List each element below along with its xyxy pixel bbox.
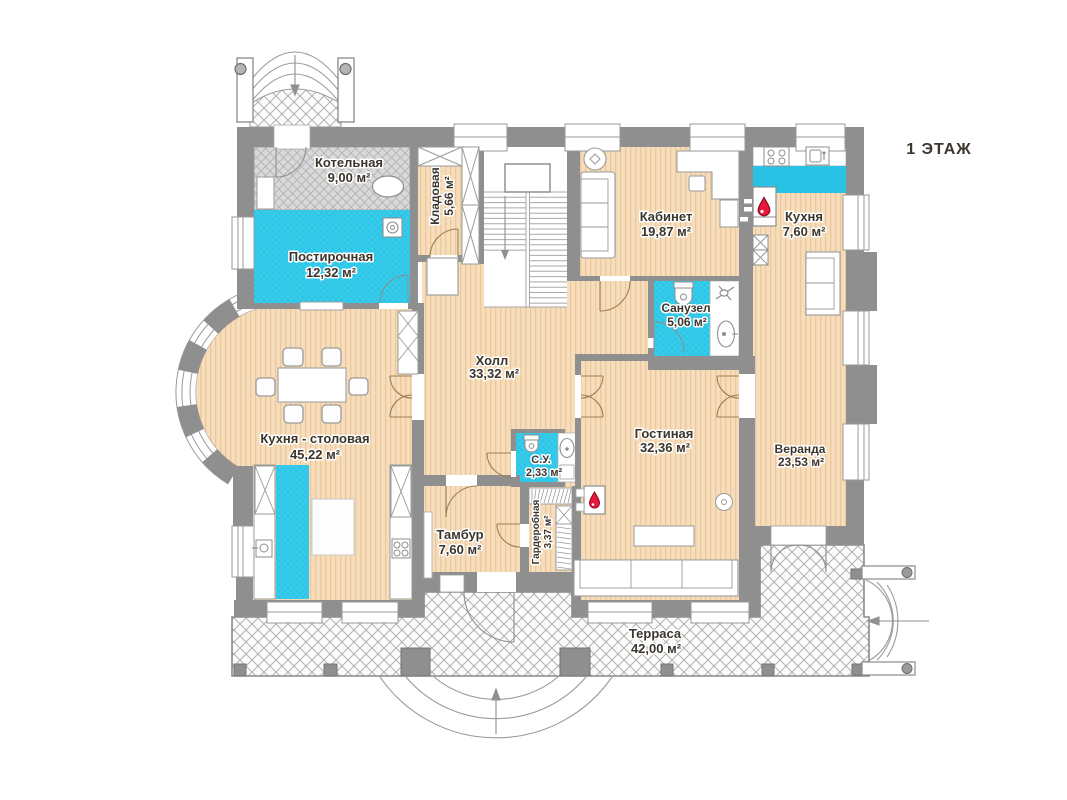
svg-text:Котельная: Котельная xyxy=(315,155,383,170)
svg-text:2,33 м²: 2,33 м² xyxy=(526,467,563,479)
svg-text:19,87 м²: 19,87 м² xyxy=(641,224,692,239)
svg-text:С.У.: С.У. xyxy=(531,454,551,466)
svg-text:1 ЭТАЖ: 1 ЭТАЖ xyxy=(906,141,972,158)
svg-text:Тамбур: Тамбур xyxy=(436,527,483,542)
svg-text:Кухня: Кухня xyxy=(785,209,823,224)
svg-text:3,37 м²: 3,37 м² xyxy=(543,515,554,549)
svg-text:Кладовая: Кладовая xyxy=(428,167,442,224)
svg-text:7,60 м²: 7,60 м² xyxy=(439,542,483,557)
svg-text:Веранда: Веранда xyxy=(775,442,826,456)
svg-text:12,32 м²: 12,32 м² xyxy=(306,265,357,280)
svg-text:23,53 м²: 23,53 м² xyxy=(778,455,824,469)
svg-text:42,00 м²: 42,00 м² xyxy=(631,641,682,656)
svg-text:Кухня - столовая: Кухня - столовая xyxy=(260,431,369,446)
svg-text:33,32 м²: 33,32 м² xyxy=(469,366,520,381)
svg-text:5,66 м²: 5,66 м² xyxy=(442,176,456,216)
svg-text:Кабинет: Кабинет xyxy=(640,209,693,224)
svg-text:Постирочная: Постирочная xyxy=(289,249,373,264)
svg-text:7,60 м²: 7,60 м² xyxy=(783,224,827,239)
svg-text:Гардеробная: Гардеробная xyxy=(530,499,542,564)
svg-text:Терраса: Терраса xyxy=(629,626,682,641)
svg-text:45,22 м²: 45,22 м² xyxy=(290,447,341,462)
svg-text:Санузел: Санузел xyxy=(661,301,710,315)
svg-text:9,00 м²: 9,00 м² xyxy=(328,170,372,185)
svg-text:32,36 м²: 32,36 м² xyxy=(640,440,691,455)
svg-text:Гостиная: Гостиная xyxy=(635,426,694,441)
svg-text:5,06 м²: 5,06 м² xyxy=(667,315,707,329)
